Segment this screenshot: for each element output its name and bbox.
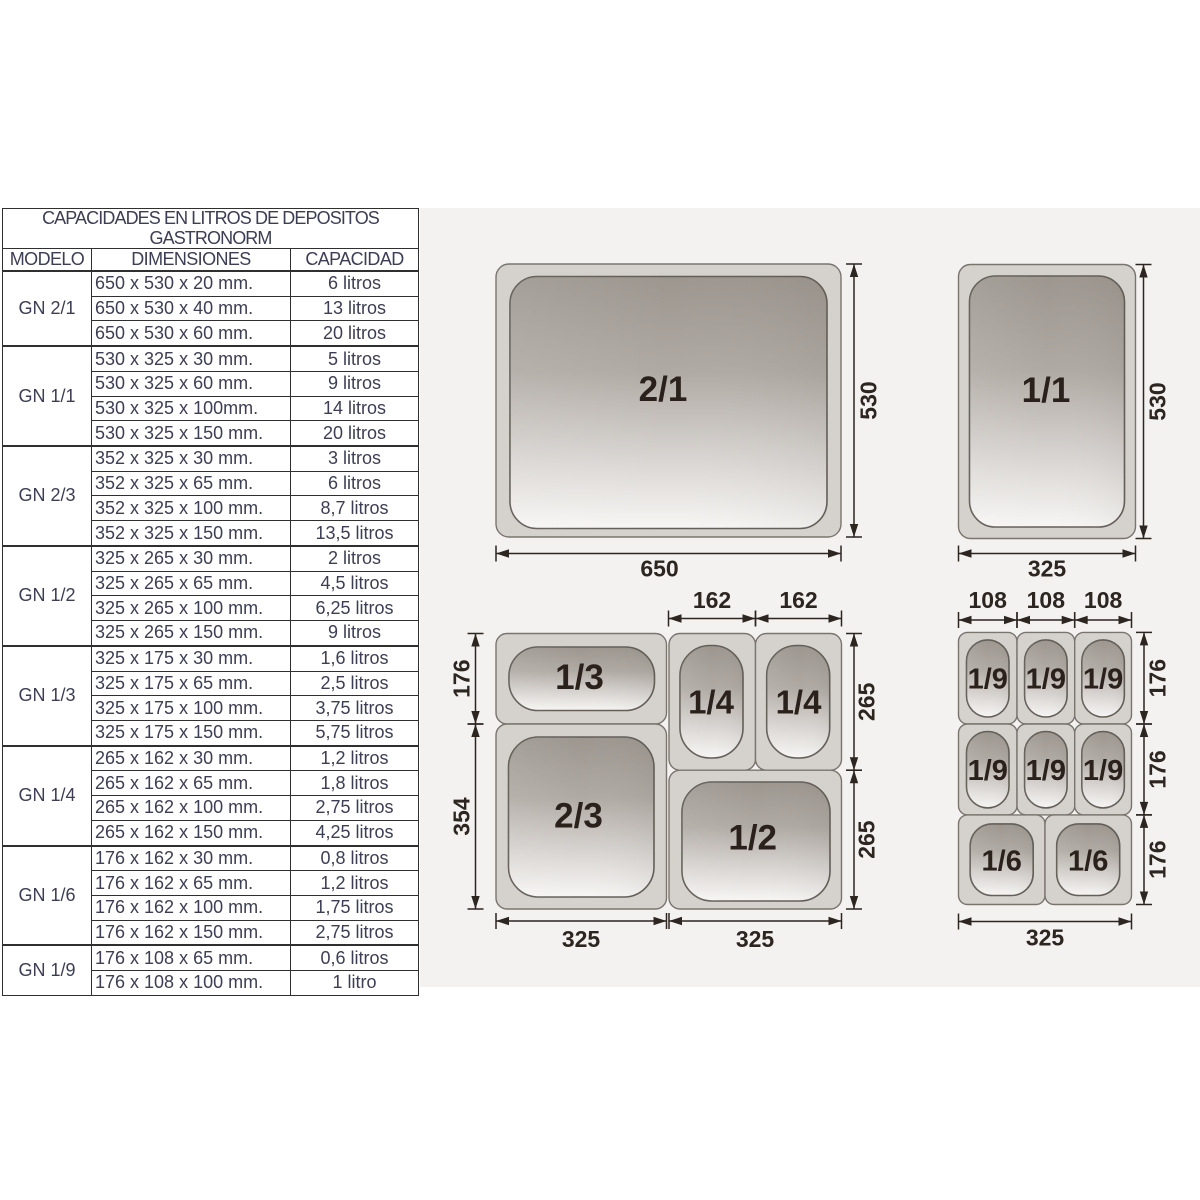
svg-text:325: 325 [1026, 925, 1065, 951]
svg-text:325: 325 [736, 926, 775, 952]
svg-text:162: 162 [779, 587, 817, 613]
svg-text:1/6: 1/6 [982, 846, 1022, 878]
svg-text:530: 530 [1145, 382, 1171, 420]
svg-text:176: 176 [449, 660, 475, 698]
svg-text:325: 325 [1028, 556, 1067, 582]
svg-text:1/9: 1/9 [968, 664, 1008, 696]
svg-text:325: 325 [562, 926, 601, 952]
svg-text:1/9: 1/9 [1083, 755, 1123, 787]
svg-text:650: 650 [640, 556, 678, 582]
svg-text:1/9: 1/9 [1026, 664, 1066, 696]
svg-text:1/9: 1/9 [1026, 755, 1066, 787]
svg-text:176: 176 [1145, 659, 1171, 697]
svg-text:176: 176 [1145, 750, 1171, 788]
svg-text:2/3: 2/3 [554, 797, 603, 836]
svg-text:265: 265 [854, 682, 880, 721]
svg-text:530: 530 [856, 381, 882, 419]
svg-text:108: 108 [969, 587, 1008, 613]
svg-text:1/1: 1/1 [1022, 371, 1071, 410]
svg-text:1/4: 1/4 [688, 684, 735, 721]
svg-text:1/2: 1/2 [728, 818, 777, 857]
svg-text:265: 265 [854, 820, 880, 859]
svg-text:1/4: 1/4 [776, 684, 823, 721]
svg-text:1/9: 1/9 [968, 755, 1008, 787]
svg-text:176: 176 [1145, 841, 1171, 879]
svg-text:2/1: 2/1 [639, 370, 688, 409]
svg-text:1/6: 1/6 [1068, 846, 1108, 878]
svg-text:162: 162 [693, 587, 731, 613]
svg-text:354: 354 [449, 797, 475, 836]
svg-text:1/3: 1/3 [555, 658, 604, 697]
svg-text:1/9: 1/9 [1083, 664, 1123, 696]
svg-text:108: 108 [1084, 587, 1123, 613]
svg-text:108: 108 [1027, 587, 1066, 613]
